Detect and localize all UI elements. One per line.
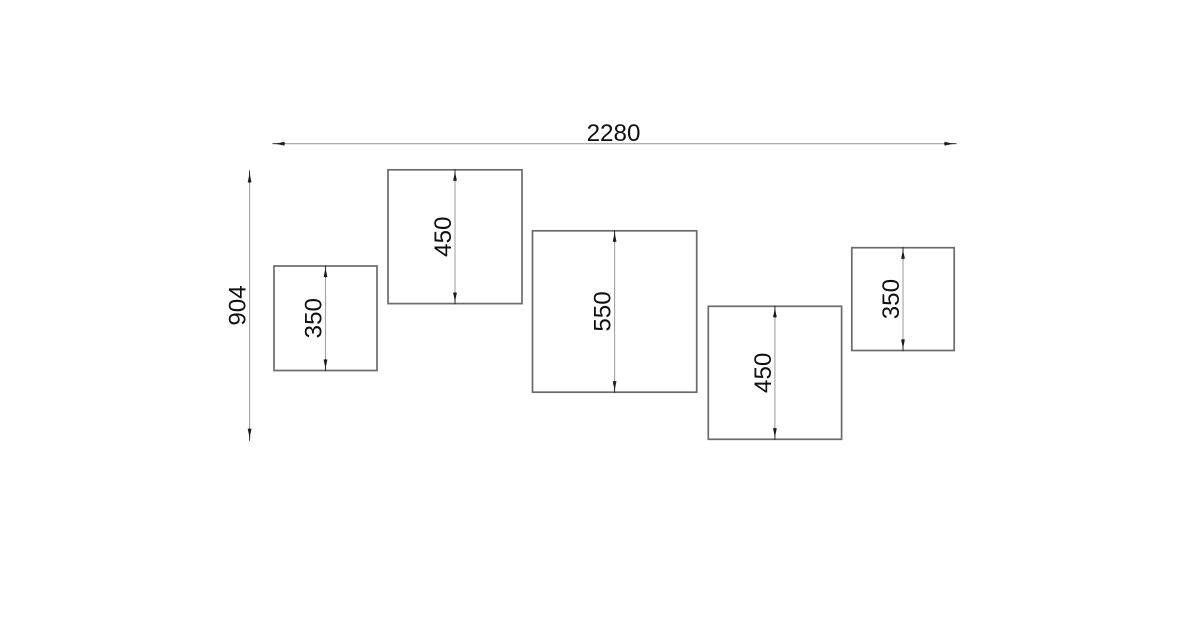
svg-text:904: 904 <box>225 285 252 325</box>
svg-text:350: 350 <box>301 298 328 338</box>
svg-text:350: 350 <box>878 279 905 319</box>
svg-text:2280: 2280 <box>587 120 641 147</box>
svg-text:550: 550 <box>590 291 617 331</box>
svg-text:450: 450 <box>750 353 777 393</box>
svg-text:450: 450 <box>430 217 457 257</box>
